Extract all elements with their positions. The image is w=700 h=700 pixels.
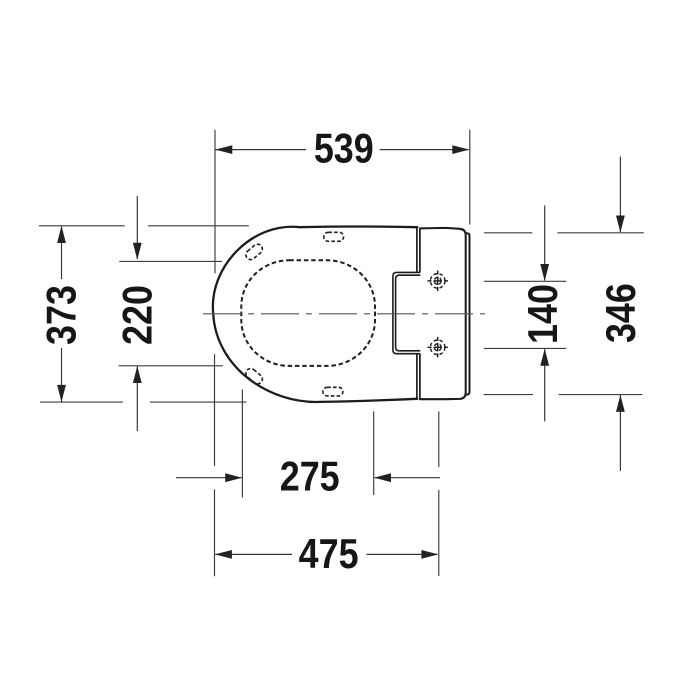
svg-text:346: 346 <box>599 283 645 343</box>
svg-text:140: 140 <box>521 284 567 344</box>
svg-text:275: 275 <box>280 454 340 500</box>
svg-text:539: 539 <box>314 126 374 172</box>
svg-text:373: 373 <box>39 285 85 345</box>
svg-text:475: 475 <box>299 532 359 578</box>
svg-text:220: 220 <box>115 285 161 345</box>
